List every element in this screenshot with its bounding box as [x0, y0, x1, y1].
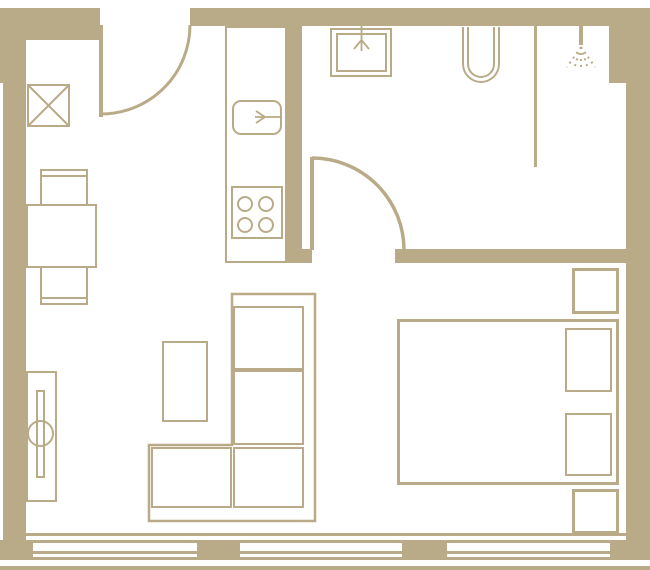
bath-bottom-wall-right: [395, 249, 650, 263]
window-2-line-mid: [240, 551, 402, 554]
right-wall: [626, 26, 650, 560]
sofa-cushion-left: [151, 447, 232, 508]
stove-burner-3: [237, 217, 253, 233]
window-3-line-mid: [447, 551, 610, 554]
sofa-cushion-1: [233, 306, 304, 370]
shower-head-stem: [579, 26, 583, 45]
stove-burner-4: [258, 217, 274, 233]
pillow-2: [565, 413, 612, 476]
window-2-line-top: [240, 540, 402, 543]
shower-spray: [567, 47, 595, 71]
window-pier-3: [610, 540, 650, 560]
bottom-terrace-line: [0, 566, 650, 570]
toilet-inner: [467, 27, 495, 78]
window-1-line-bottom: [33, 557, 197, 560]
top-wall-left: [0, 8, 100, 40]
window-1-line-top: [33, 540, 197, 543]
sofa-cushion-corner: [233, 447, 304, 508]
radiator-knob: [27, 420, 54, 447]
kitchen-bath-wall: [287, 26, 302, 263]
dining-chair-bottom-back: [40, 297, 88, 305]
window-3-line-top: [447, 540, 610, 543]
bath-sink-inner: [336, 33, 387, 72]
sofa-cushion-2: [233, 370, 304, 445]
entry-door-swing-arc: [101, 25, 190, 114]
entry-door-leaf: [99, 25, 103, 117]
pillow-1: [565, 328, 612, 392]
floor-plan: [0, 0, 650, 570]
bath-door-leaf: [310, 157, 314, 250]
bottom-left-corner: [0, 540, 33, 560]
window-1-line-mid: [33, 551, 197, 554]
shower-duct: [609, 26, 626, 83]
bath-bottom-wall-left: [287, 249, 312, 263]
window-3-line-bottom: [447, 557, 610, 560]
stove-burner-1: [237, 196, 253, 212]
nightstand-top: [572, 268, 619, 314]
kitchen-sink: [232, 100, 282, 135]
window-2-line-bottom: [240, 557, 402, 560]
stove-burner-2: [258, 196, 274, 212]
interior-face-line: [26, 533, 626, 536]
window-pier-2: [402, 540, 447, 560]
dining-table: [26, 204, 97, 268]
vent-shaft: [27, 84, 70, 127]
nightstand-bottom: [572, 489, 619, 534]
left-wall: [3, 83, 26, 540]
dining-chair-top-back: [40, 169, 88, 177]
coffee-table: [162, 341, 208, 422]
left-wall-upper: [0, 40, 26, 83]
top-wall-right: [190, 8, 650, 26]
window-pier-1: [197, 540, 240, 560]
shower-partition: [534, 26, 537, 167]
bath-door-swing-arc: [312, 158, 404, 250]
